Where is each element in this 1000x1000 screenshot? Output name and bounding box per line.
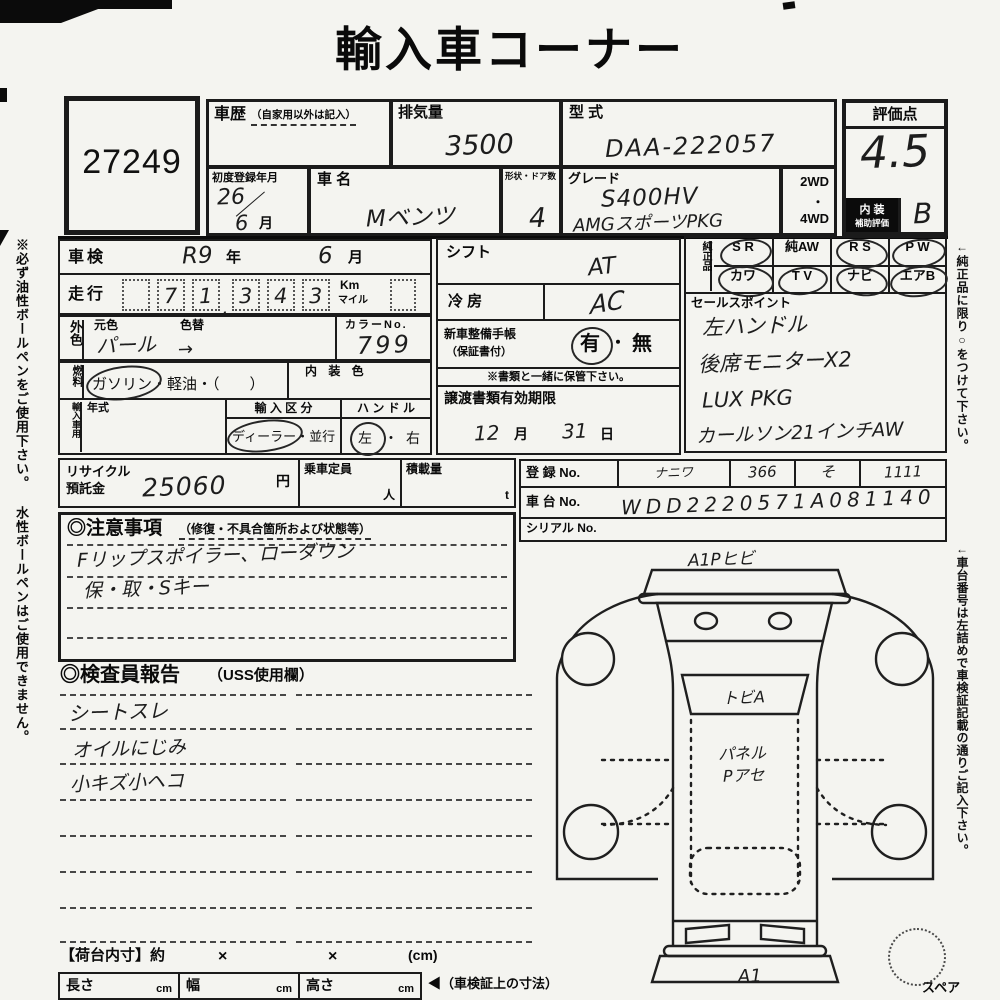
mileage-digit: 3: [309, 286, 323, 307]
page-title: 輸入車コーナー: [240, 24, 780, 77]
rating-label: 評価点: [846, 103, 944, 129]
left-headlight: [695, 613, 717, 629]
service-book-note-strip: ※書類と一緒に保管下さい。: [436, 367, 681, 387]
sales-line: 後席モニターX2: [698, 349, 852, 375]
shape-doors-cell: 形状・ドア数 4: [500, 166, 562, 236]
load-unit: t: [505, 489, 509, 502]
grade-label: グレード: [568, 172, 620, 187]
sales-line: カールソン21インチAW: [696, 420, 904, 446]
transfer-box: 譲渡書類有効期限 12 月 31 日: [436, 385, 681, 455]
mileage-digit: 3: [239, 286, 253, 307]
handle-right: 右: [406, 428, 420, 448]
drive-cell: 2WD ・ 4WD: [780, 166, 837, 236]
color-tab: 外色: [60, 320, 84, 360]
import-type-cell: 輸 入 区 分 ディーラー・並行: [227, 400, 342, 453]
right-margin-note-genuine: ←純正品に限り○をつけて下さい。: [956, 240, 968, 540]
genuine-label: 純正品: [686, 241, 712, 291]
transfer-label: 譲渡書類有効期限: [444, 391, 556, 407]
model-year-label: 年式: [87, 402, 109, 414]
chassis-no-label: 車 台 No.: [526, 495, 580, 510]
fuel-paren: ・（ ）: [197, 376, 265, 393]
import-row: 輸入車用 年式 輸 入 区 分 ディーラー・並行 ハ ン ド ル 左 ・ 右: [58, 398, 432, 455]
diagram-bottom-note: A1: [738, 968, 762, 987]
history-note: （自家用以外は記入）: [251, 110, 356, 126]
shaken-month: 6: [318, 245, 333, 268]
interior-rating-label: 内 装 補助評価: [846, 198, 898, 232]
right-headlight: [769, 613, 791, 629]
scan-artifact-nub: [0, 88, 7, 102]
color-no-label: カラーNo.: [345, 319, 408, 331]
first-reg-label: 初度登録年月: [212, 172, 278, 184]
displacement-value: 3500: [445, 131, 515, 160]
mileage-label: 走行: [68, 286, 106, 304]
left-taillight: [686, 925, 729, 943]
service-book-label2: （保証書付）: [446, 346, 512, 358]
model-code-value: DAA-222057: [605, 131, 777, 161]
service-book-box: 新車整備手帳 （保証書付） 有 ・ 無: [436, 319, 681, 369]
color-no-value: 799: [357, 332, 413, 358]
diagram-top-note: A1Pヒビ: [688, 551, 755, 570]
mileage-digit: 4: [274, 286, 288, 307]
capacity-cell: 乗車定員 人: [298, 458, 402, 508]
body-left-line: [666, 641, 673, 946]
transfer-month: 12: [474, 423, 500, 444]
rear-right-wheel: [872, 805, 926, 859]
cargo-length-unit: cm: [156, 983, 172, 995]
scan-artifact-edge: [0, 230, 9, 246]
registration-block: 登 録 No. ナニワ 366 そ 1111 車 台 No. WDD222057…: [519, 459, 947, 542]
handle-label: ハ ン ド ル: [342, 400, 430, 419]
interior-color-label: 内 装 色: [305, 365, 368, 378]
reg-no-label: 登 録 No.: [526, 466, 580, 481]
reg-plate-class: 366: [748, 465, 777, 481]
service-book-no: 無: [632, 333, 652, 355]
right-taillight: [761, 925, 804, 943]
mileage-row: 走行 7 1 , 3 4 3 Km マイル: [58, 273, 432, 315]
sales-line: LUX PKG: [702, 387, 794, 411]
genuine-cell: 純AW: [772, 238, 830, 265]
car-name-label: 車 名: [317, 172, 351, 189]
front-face: [657, 603, 832, 641]
drive-4wd: 4WD: [800, 212, 829, 227]
fuel-row: 燃料 ガソリン・軽油・（ ） 内 装 色: [58, 361, 432, 400]
shaken-label: 車検: [68, 249, 106, 267]
drive-2wd: 2WD: [800, 175, 829, 190]
transfer-day: 31: [562, 421, 588, 442]
reg-plate-area: ナニワ: [654, 466, 693, 480]
color-row: 外色 元色 色替 パール → カラーNo. 799: [58, 315, 432, 361]
shape-doors-label: 形状・ドア数: [505, 172, 556, 182]
lot-number-box: 27249: [64, 96, 200, 235]
lot-number: 27249: [69, 143, 195, 182]
car-name-value: Mベンツ: [366, 205, 456, 231]
cargo-x1: ×: [218, 948, 227, 966]
cautions-box: ◎注意事項 （修復・不具合箇所および状態等） Fリップスポイラー、ローダウン 保…: [58, 512, 516, 662]
interior-color-cell: 内 装 色: [287, 363, 430, 398]
base-color-value: パール: [96, 334, 157, 356]
front-bumper-lip: [639, 594, 850, 603]
front-right-wheel: [876, 633, 928, 685]
load-cell: 積載量 t: [400, 458, 516, 508]
repaint-label: 色替: [180, 319, 204, 332]
cargo-x2: ×: [328, 948, 337, 966]
first-reg-month: 6: [235, 213, 249, 234]
first-reg-cell: 初度登録年月 26 ／ 6 月: [206, 166, 310, 236]
mileage-digit: 1: [199, 286, 213, 307]
reg-plate-kana: そ: [820, 465, 836, 481]
rating-score: 4.5: [859, 130, 930, 176]
caution-line: Fリップスポイラー、ローダウン: [77, 542, 354, 571]
base-color-label: 元色: [94, 319, 118, 332]
fuel-opt-diesel: 軽油: [167, 376, 197, 393]
history-cell: 車歴 （自家用以外は記入）: [206, 99, 392, 168]
shaken-year: R9: [182, 244, 213, 268]
ac-value: AC: [590, 287, 625, 319]
shift-value: AT: [587, 255, 617, 281]
rear-bumper-lip: [664, 946, 826, 956]
inspector-line: シートスレ: [68, 700, 169, 723]
front-bumper: [644, 570, 846, 594]
shift-box: シフト AT: [436, 238, 681, 285]
cautions-label: ◎注意事項: [67, 518, 162, 539]
grade-cell: グレード S400HV AMGスポーツPKG: [560, 166, 782, 236]
body-right-line: [817, 641, 823, 946]
ac-box: 冷 房 AC: [436, 283, 681, 321]
cargo-height-label: 高さ: [306, 978, 334, 994]
diagram-roof-note2: Pアセ: [723, 767, 765, 784]
inspector-line: オイルにじみ: [72, 738, 187, 761]
cautions-note: （修復・不具合箇所および状態等）: [179, 523, 371, 540]
chassis-no-value: WDD2220571A081140: [621, 487, 936, 518]
load-label: 積載量: [406, 463, 442, 476]
diagram-windshield-note: トビA: [722, 689, 765, 706]
sales-points-label: セールスポイント: [691, 296, 791, 310]
service-book-circle: [569, 325, 615, 368]
caution-line: 保・取・Sキー: [83, 578, 210, 601]
mileage-digit: 7: [164, 286, 178, 307]
grade-line2: AMGスポーツPKG: [573, 212, 724, 235]
rear-window: [690, 848, 800, 894]
shaken-year-suffix: 年: [226, 250, 241, 267]
model-code-cell: 型 式 DAA-222057: [560, 99, 837, 168]
service-book-label1: 新車整備手帳: [444, 328, 516, 341]
import-tab: 輸入車用: [61, 402, 82, 452]
color-no-cell: カラーNo. 799: [335, 317, 430, 359]
cargo-height-unit: cm: [398, 983, 414, 995]
cargo-label: 【荷台内寸】約: [60, 948, 165, 965]
recycle-value: 25060: [142, 473, 227, 501]
ac-label: 冷 房: [438, 285, 545, 319]
cargo-unit: (cm): [408, 948, 438, 964]
inspector-line: 小キズ小ヘコ: [70, 772, 185, 795]
mileage-extra-box: [390, 279, 416, 311]
cargo-ref-note: ◀（車検証上の寸法）: [428, 977, 558, 992]
right-margin-note-chassis: ←車台番号は左詰めで車検証記載の通りご記入下さい。: [956, 542, 968, 862]
car-name-cell: 車 名 Mベンツ: [308, 166, 502, 236]
cargo-width-cell: 幅 cm: [178, 972, 300, 1000]
model-code-label: 型 式: [569, 105, 603, 122]
shaken-month-suffix: 月: [348, 250, 363, 267]
cargo-length-label: 長さ: [66, 978, 94, 994]
interior-rating-value: B: [898, 198, 944, 232]
reg-plate-number: 1111: [884, 464, 923, 480]
sales-points-box: セールスポイント 左ハンドル 後席モニターX2 LUX PKG カールソン21イ…: [684, 292, 947, 453]
spare-tire-label: スペア: [922, 981, 960, 996]
shape-doors-value: 4: [529, 205, 547, 233]
spare-tire-circle: [888, 928, 946, 986]
first-reg-month-suffix: 月: [259, 216, 273, 232]
mileage-unit-km: Km: [340, 279, 359, 292]
auction-sheet: 輸入車コーナー 27249 車歴 （自家用以外は記入） 排気量 3500 型 式…: [0, 0, 1000, 1000]
transfer-month-suffix: 月: [514, 427, 528, 443]
import-type-label: 輸 入 区 分: [227, 400, 340, 419]
recycle-label1: リサイクル: [66, 465, 130, 480]
serial-no-label: シリアル No.: [526, 522, 597, 535]
rear-left-wheel: [564, 805, 618, 859]
service-book-note: ※書類と一緒に保管下さい。: [438, 369, 679, 383]
drive-dot: ・: [812, 196, 824, 209]
shift-label: シフト: [446, 245, 491, 262]
genuine-grid: 純正品 S R 純AW R S P W カワ T V ナビ エアB: [684, 236, 947, 294]
scan-artifact-mark: [783, 1, 796, 10]
mileage-unit-mile: マイル: [338, 295, 368, 306]
model-year-cell: 年式: [84, 400, 227, 453]
recycle-label2: 預託金: [66, 482, 105, 497]
sales-line: 左ハンドル: [702, 314, 808, 339]
left-margin-note: ※必ず油性ボールペンをご使用下さい。 水性ボールペンはご使用できません。: [15, 238, 28, 804]
diagram-roof-note1: パネル: [718, 745, 767, 763]
import-type-circle: [225, 415, 304, 456]
cargo-width-label: 幅: [186, 978, 200, 994]
displacement-label: 排気量: [398, 105, 443, 122]
scan-artifact-corner: [0, 0, 122, 23]
cargo-height-cell: 高さ cm: [298, 972, 422, 1000]
cargo-width-unit: cm: [276, 983, 292, 995]
shaken-row: 車検 R9 年 6 月: [58, 239, 432, 275]
cargo-length-cell: 長さ cm: [58, 972, 180, 1000]
import-type-parallel: 並行: [309, 429, 335, 444]
inspector-note: （USS使用欄）: [208, 668, 314, 685]
history-label: 車歴: [214, 106, 246, 124]
capacity-label: 乗車定員: [304, 463, 352, 476]
fuel-tab: 燃料: [60, 365, 84, 398]
rating-box: 評価点 4.5 内 装 補助評価 B: [842, 99, 948, 236]
repaint-arrow: →: [178, 341, 194, 360]
inspector-label: ◎検査員報告: [60, 664, 180, 686]
front-left-wheel: [562, 633, 614, 685]
grade-line1: S400HV: [601, 185, 699, 211]
displacement-cell: 排気量 3500: [390, 99, 562, 168]
recycle-unit: 円: [276, 474, 290, 490]
transfer-day-suffix: 日: [600, 427, 614, 443]
recycle-row: リサイクル 預託金 25060 円: [58, 458, 300, 508]
capacity-unit: 人: [383, 489, 395, 502]
